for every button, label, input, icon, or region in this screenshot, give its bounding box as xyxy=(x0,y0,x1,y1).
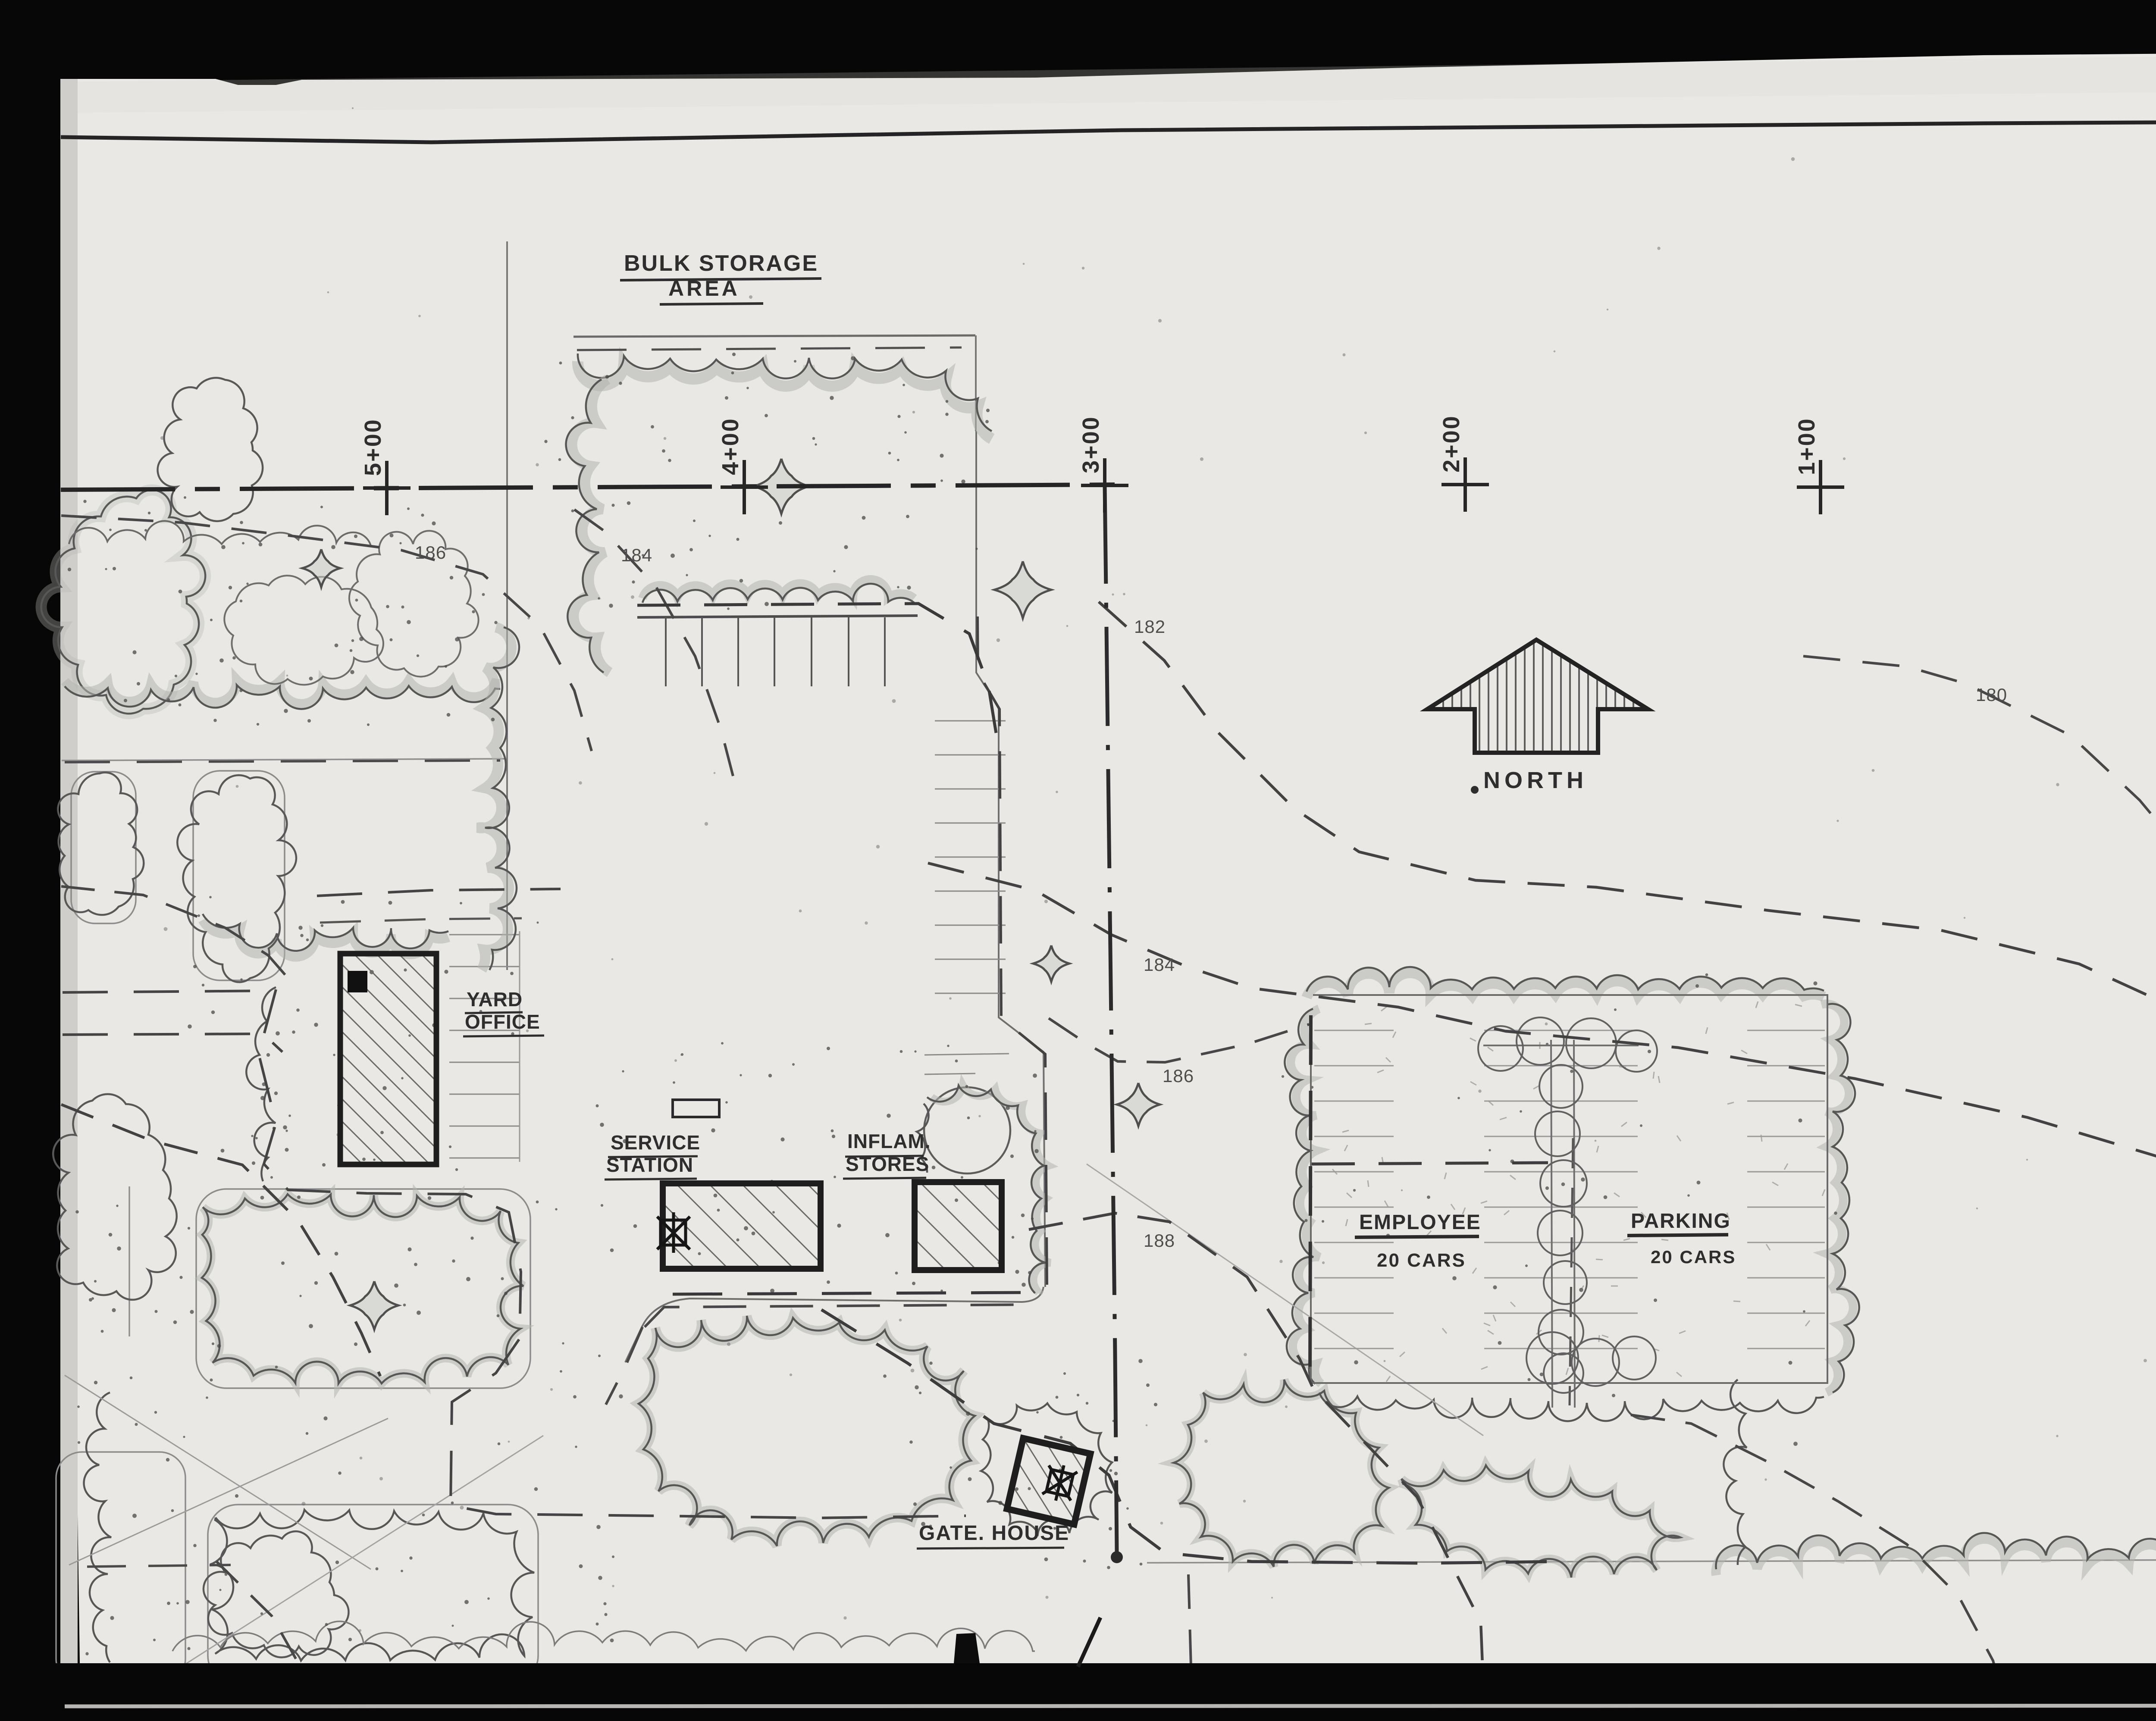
svg-text:20 CARS: 20 CARS xyxy=(1377,1250,1466,1271)
svg-text:YARD: YARD xyxy=(467,988,523,1011)
svg-text:INFLAM.: INFLAM. xyxy=(847,1130,931,1152)
svg-text:OFFICE: OFFICE xyxy=(465,1011,540,1033)
svg-text:5+00: 5+00 xyxy=(360,418,386,476)
svg-text:STORES: STORES xyxy=(846,1153,929,1175)
svg-text:1+00: 1+00 xyxy=(1794,417,1820,475)
svg-text:PARKING: PARKING xyxy=(1631,1210,1731,1233)
svg-text:3+00: 3+00 xyxy=(1078,416,1104,473)
svg-text:186: 186 xyxy=(415,542,446,563)
svg-text:188: 188 xyxy=(1144,1230,1175,1251)
svg-text:180: 180 xyxy=(1976,685,2007,705)
svg-text:184: 184 xyxy=(1144,954,1175,975)
svg-text:AREA: AREA xyxy=(668,276,740,300)
svg-text:BULK STORAGE: BULK STORAGE xyxy=(624,251,818,276)
svg-text:EMPLOYEE: EMPLOYEE xyxy=(1359,1211,1481,1234)
svg-text:SERVICE: SERVICE xyxy=(611,1131,700,1154)
svg-text:GATE. HOUSE: GATE. HOUSE xyxy=(919,1522,1069,1545)
svg-text:186: 186 xyxy=(1163,1066,1194,1086)
svg-text:20 CARS: 20 CARS xyxy=(1651,1247,1736,1267)
svg-text:182: 182 xyxy=(1134,616,1166,637)
svg-text:4+00: 4+00 xyxy=(718,417,743,475)
svg-text:NORTH: NORTH xyxy=(1483,767,1588,793)
svg-text:STATION: STATION xyxy=(606,1154,693,1176)
svg-text:2+00: 2+00 xyxy=(1438,415,1464,472)
svg-text:184: 184 xyxy=(621,545,652,565)
